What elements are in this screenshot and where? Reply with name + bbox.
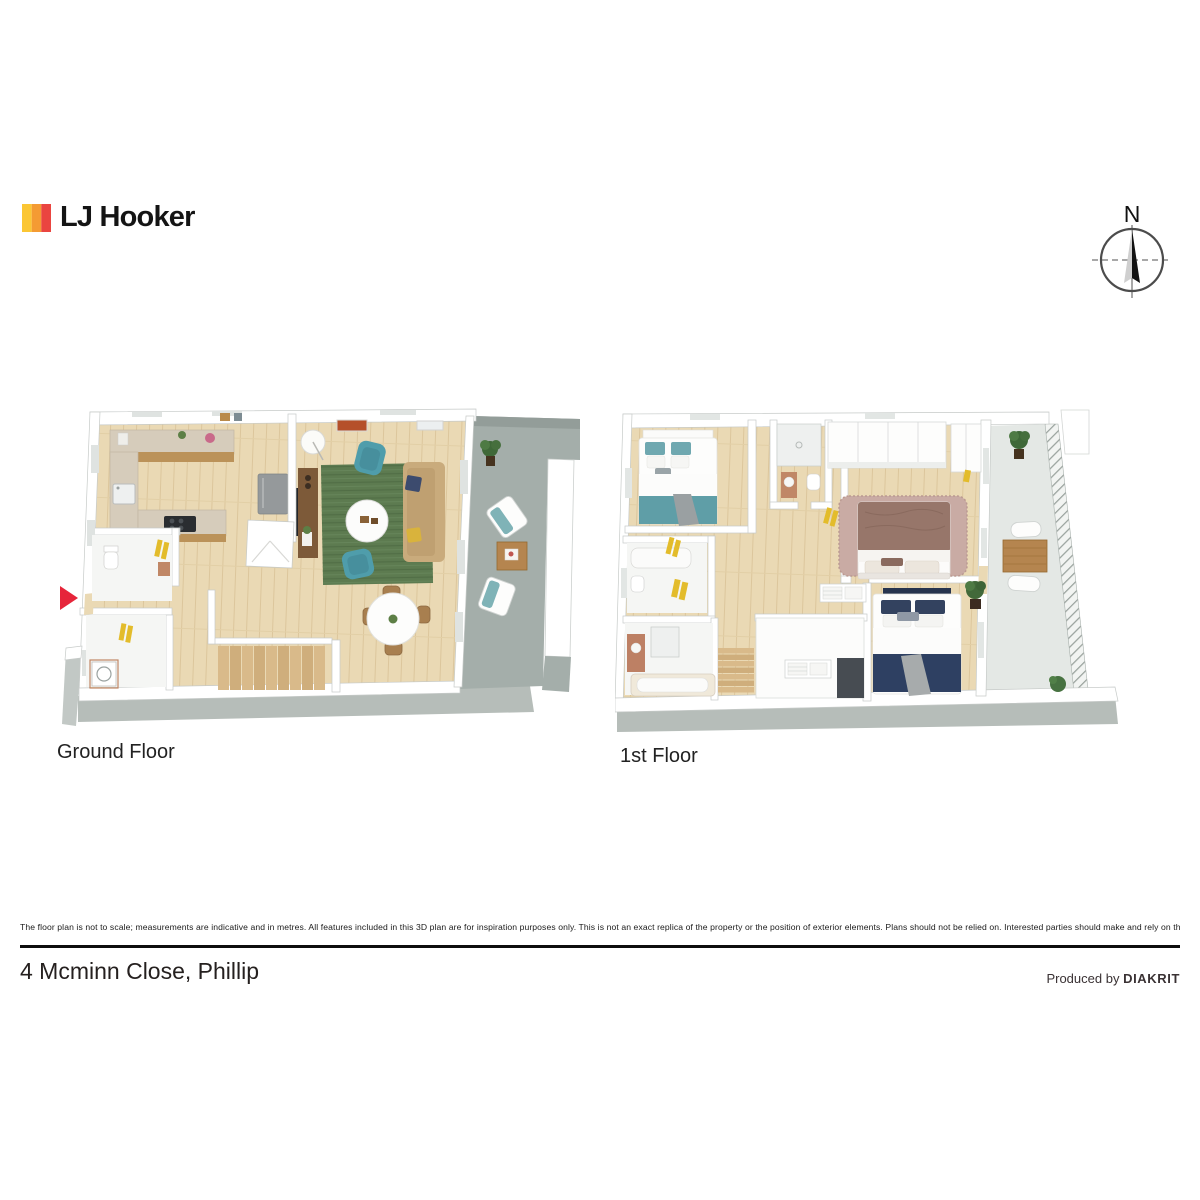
property-address: 4 Mcminn Close, Phillip bbox=[20, 958, 259, 985]
first-floor-label: 1st Floor bbox=[620, 745, 698, 768]
gf-laundry bbox=[86, 615, 166, 688]
compass-needle-west bbox=[1124, 229, 1132, 283]
gf-deck-plant-pot bbox=[486, 456, 495, 466]
gf-stairs bbox=[218, 646, 325, 690]
gf-toilet bbox=[104, 552, 118, 569]
produced-by-text: Produced by bbox=[1046, 971, 1119, 986]
logo-stripe-yellow bbox=[22, 204, 32, 232]
logo-stripe-orange bbox=[32, 204, 42, 232]
gf-washer bbox=[92, 662, 116, 686]
compass: N bbox=[1088, 198, 1178, 308]
ff-bathroom-upper bbox=[627, 537, 707, 613]
ff-shower-2 bbox=[651, 627, 679, 657]
producer-credit: Produced by DIAKRIT bbox=[1046, 971, 1180, 986]
ff-shower bbox=[777, 424, 821, 466]
floorplan-sheet: LJ Hooker N bbox=[0, 0, 1200, 1200]
ground-floor-plan bbox=[60, 400, 580, 740]
ff-roof-overhang bbox=[1061, 410, 1089, 454]
ff-balcony-chair-top bbox=[1011, 521, 1042, 538]
ff-bed-navy bbox=[873, 588, 961, 696]
logo-stripe-red bbox=[41, 204, 51, 232]
gf-sofa bbox=[403, 462, 445, 562]
ljhooker-logo: LJ Hooker bbox=[22, 201, 195, 234]
first-floor-plan bbox=[615, 408, 1145, 738]
footer-divider bbox=[20, 945, 1180, 948]
gf-coffee-table bbox=[346, 500, 388, 542]
gf-entry-arrow bbox=[60, 586, 78, 610]
ff-bed-teal bbox=[639, 430, 717, 526]
producer-name: DIAKRIT bbox=[1123, 971, 1180, 986]
ground-floor-label: Ground Floor bbox=[57, 741, 175, 764]
compass-needle-east bbox=[1132, 229, 1140, 283]
disclaimer-text: The floor plan is not to scale; measurem… bbox=[20, 922, 1180, 932]
ljhooker-logo-mark bbox=[22, 204, 51, 232]
brand-name: LJ Hooker bbox=[60, 201, 195, 234]
gf-kitchen-sink bbox=[113, 484, 135, 504]
gf-bathroom bbox=[92, 535, 172, 601]
ff-master-bedroom bbox=[839, 496, 967, 579]
ff-ensuite-toilet bbox=[807, 474, 820, 490]
ff-balcony-chair-bottom bbox=[1007, 575, 1040, 592]
compass-north-label: N bbox=[1124, 201, 1141, 227]
